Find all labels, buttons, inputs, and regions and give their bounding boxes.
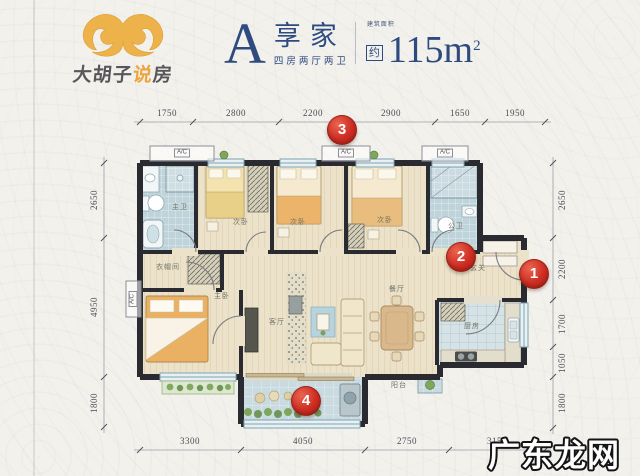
marker-4: 4: [291, 386, 321, 416]
dim-top-5: 1650: [450, 108, 470, 118]
dim-left-1: 2650: [89, 190, 99, 210]
nightstand: [278, 228, 289, 237]
room-label-dining: 餐厅: [389, 284, 405, 294]
dim-left-2: 4950: [89, 297, 99, 317]
dim-right-4: 1050: [557, 353, 567, 373]
room-label-kitchen: 厨房: [464, 321, 480, 331]
bed-bedroom-b: [277, 166, 321, 224]
dim-right-2: 2200: [557, 259, 567, 279]
ac-label-3: A/C: [437, 149, 453, 158]
dim-top-1: 1750: [157, 108, 177, 118]
bed-bedroom-a: [206, 166, 244, 218]
washing-machine: [340, 384, 360, 416]
wardrobe: [248, 164, 268, 212]
marker-1: 1: [519, 259, 549, 289]
rug-plant: [321, 331, 326, 336]
dim-bottom-2: 4050: [293, 436, 313, 446]
nightstand: [207, 222, 218, 231]
ac-label-2: A/C: [338, 149, 354, 158]
room-label-closet: 衣帽间: [156, 262, 180, 272]
room-label-public-bath: 公卫: [448, 221, 464, 231]
nightstand: [368, 230, 379, 239]
room-label-master-bath: 主卫: [172, 202, 188, 212]
wardrobe: [348, 224, 364, 248]
dim-top-6: 1950: [505, 108, 525, 118]
dim-right-1: 2650: [557, 190, 567, 210]
dim-right-3: 1700: [557, 314, 567, 334]
dim-top-4: 2900: [381, 108, 401, 118]
dim-right-5: 1800: [557, 393, 567, 413]
cabinet: [245, 308, 258, 352]
shoe-cabinet: [483, 256, 517, 266]
ac-label-1: A/C: [174, 149, 190, 158]
coffee-table: [317, 314, 329, 330]
dim-top-3: 2200: [303, 108, 323, 118]
marker-3: 3: [327, 115, 357, 145]
dim-left-3: 1800: [89, 393, 99, 413]
dim-bottom-1: 3300: [180, 436, 200, 446]
shoe-cabinet: [483, 241, 517, 253]
floorplan-page: 大胡子说房 A 享家 四房两厅两卫 建筑面积 约 115m2: [0, 0, 640, 476]
room-label-bedroom-a: 次卧: [233, 217, 249, 227]
marker-2: 2: [446, 242, 476, 272]
room-label-balcony: 阳台: [391, 380, 407, 390]
tv-feature-wall: [286, 272, 306, 364]
dim-top-2: 2800: [226, 108, 246, 118]
flower-box: [162, 381, 234, 394]
room-label-living: 客厅: [269, 317, 285, 327]
tv-console: [289, 296, 302, 314]
room-label-master-bedroom: 主卧: [214, 291, 230, 301]
room-label-bedroom-b: 次卧: [290, 217, 306, 227]
bed-master: [146, 296, 208, 362]
fridge: [441, 303, 465, 321]
dim-bottom-3: 2750: [397, 436, 417, 446]
ac-label-4: A/C: [129, 291, 138, 307]
dim-bottom-4: 3150: [487, 436, 507, 446]
room-label-bedroom-c: 次卧: [377, 215, 393, 225]
